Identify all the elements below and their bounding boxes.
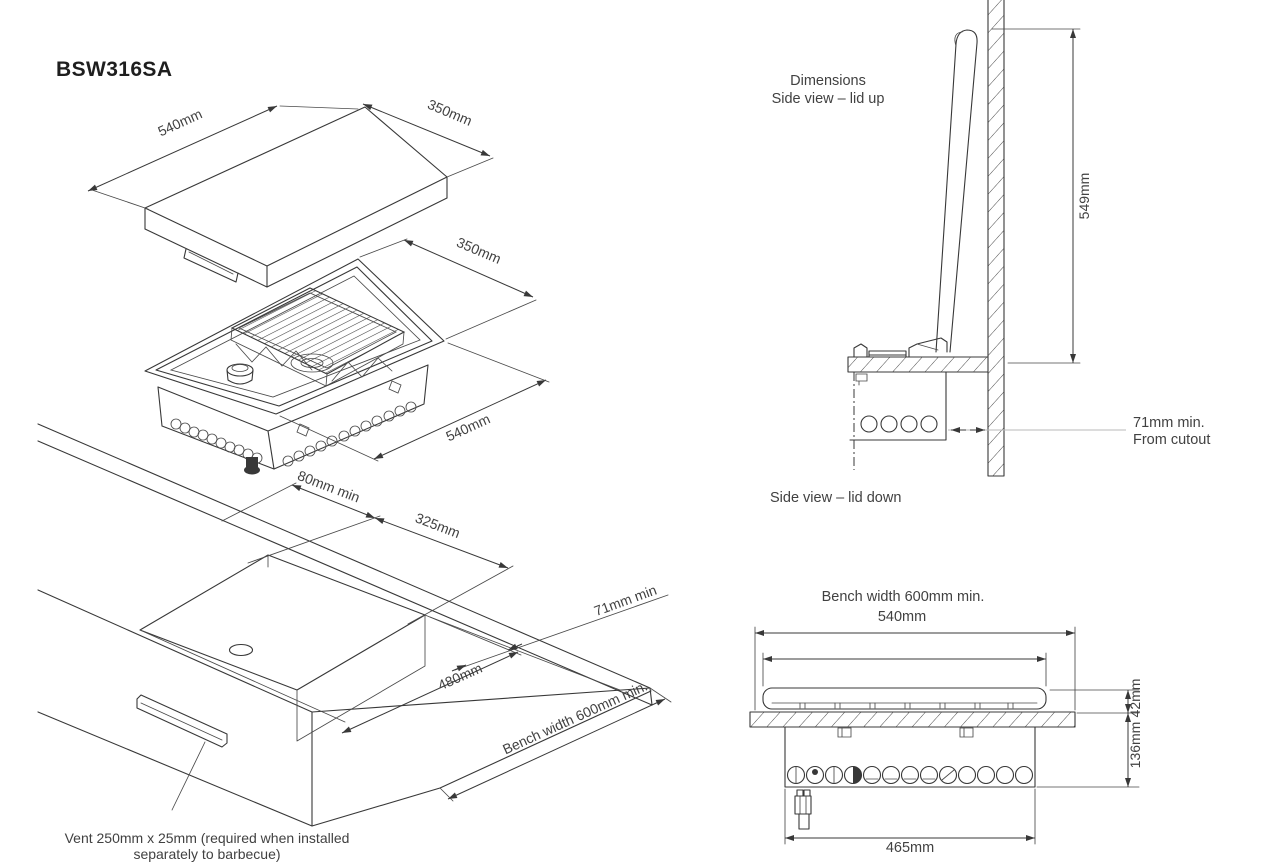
benchtop-front-section [750, 712, 1075, 727]
drawing-page: BSW316SA 540mm 350mm [0, 0, 1263, 862]
mounting-clips [297, 381, 401, 436]
burner-isometric-view: 350mm 540mm [145, 234, 549, 475]
product-code: BSW316SA [56, 58, 172, 81]
view-caption-lid-up: Side view – lid up [772, 91, 885, 107]
vent-leader-line [172, 742, 205, 810]
lid-isometric-view: 540mm 350mm [88, 96, 493, 287]
dim-label-side-clearance: 71mm min [592, 582, 659, 619]
burner-profile [854, 338, 947, 357]
front-label-bench-width: Bench width 600mm min. [822, 589, 985, 605]
bench-cutout-view: 80mm min 325mm 71mm min 480mm Bench widt… [38, 424, 671, 862]
front-vent-holes [788, 767, 1033, 784]
lid-dimension-540: 540mm [88, 105, 358, 209]
front-dimension-465: 465mm [785, 789, 1035, 856]
side-view-lid-down: Side view – lid down [770, 490, 901, 506]
bench-dimension-325: 325mm [248, 509, 513, 624]
front-right-dimensions: 42mm 136mm [1037, 679, 1143, 787]
view-caption-lid-down: Side view – lid down [770, 490, 901, 506]
unit-box-front [785, 727, 1035, 829]
front-label-540: 540mm [878, 609, 926, 625]
clearance-note-line1: 71mm min. [1133, 415, 1205, 431]
burner-grate [231, 288, 404, 386]
lid-outline [145, 107, 447, 287]
dim-label-lid-350: 350mm [425, 96, 474, 129]
bench-cutout-opening [140, 555, 425, 741]
lid-raised [936, 30, 977, 352]
front-dimension-540 [763, 653, 1046, 686]
vent-note-line2: separately to barbecue) [133, 846, 280, 862]
vent-note-line1: Vent 250mm x 25mm (required when install… [65, 830, 350, 846]
dim-label-burner-350: 350mm [454, 234, 503, 267]
bench-vent-slot [137, 695, 227, 810]
dim-label-42: 42mm [1127, 679, 1143, 718]
dim-label-lid-540: 540mm [155, 105, 204, 139]
wall-section [988, 0, 1004, 476]
gas-fitting [795, 790, 811, 829]
benchtop-section [848, 357, 988, 372]
dim-label-136: 136mm [1127, 722, 1143, 769]
mounting-clamps [838, 728, 973, 737]
lid-profile-closed [763, 688, 1046, 709]
dim-label-lid-height: 549mm [1076, 173, 1092, 220]
front-dimension-600 [755, 627, 1075, 710]
view-caption-dimensions: Dimensions [790, 73, 866, 89]
side-view-lid-up: 549mm Dimensions Side view – lid up 71mm… [772, 0, 1211, 476]
dim-label-bench-width: Bench width 600mm min. [500, 678, 650, 758]
cutout-clearance-note: 71mm min. From cutout [948, 415, 1210, 448]
clearance-note-line2: From cutout [1133, 432, 1210, 448]
bench-dimension-width: Bench width 600mm min. [440, 678, 671, 801]
burner-box [158, 365, 428, 475]
dim-label-cutout-depth: 480mm [435, 660, 484, 694]
bench-dimension-480: 480mm [140, 615, 521, 733]
unit-box-profile [850, 372, 946, 470]
lid-dimension-350: 350mm [363, 96, 493, 177]
front-section-view: Bench width 600mm min. 540mm [750, 589, 1143, 856]
front-label-465: 465mm [886, 840, 934, 856]
vent-holes-left [171, 419, 262, 463]
control-knob [227, 364, 253, 384]
dimension-549: 549mm [992, 29, 1092, 363]
gas-inlet-hole [230, 645, 253, 656]
dim-label-cutout-width: 325mm [413, 509, 462, 541]
technical-drawing-canvas: BSW316SA 540mm 350mm [0, 0, 1263, 862]
